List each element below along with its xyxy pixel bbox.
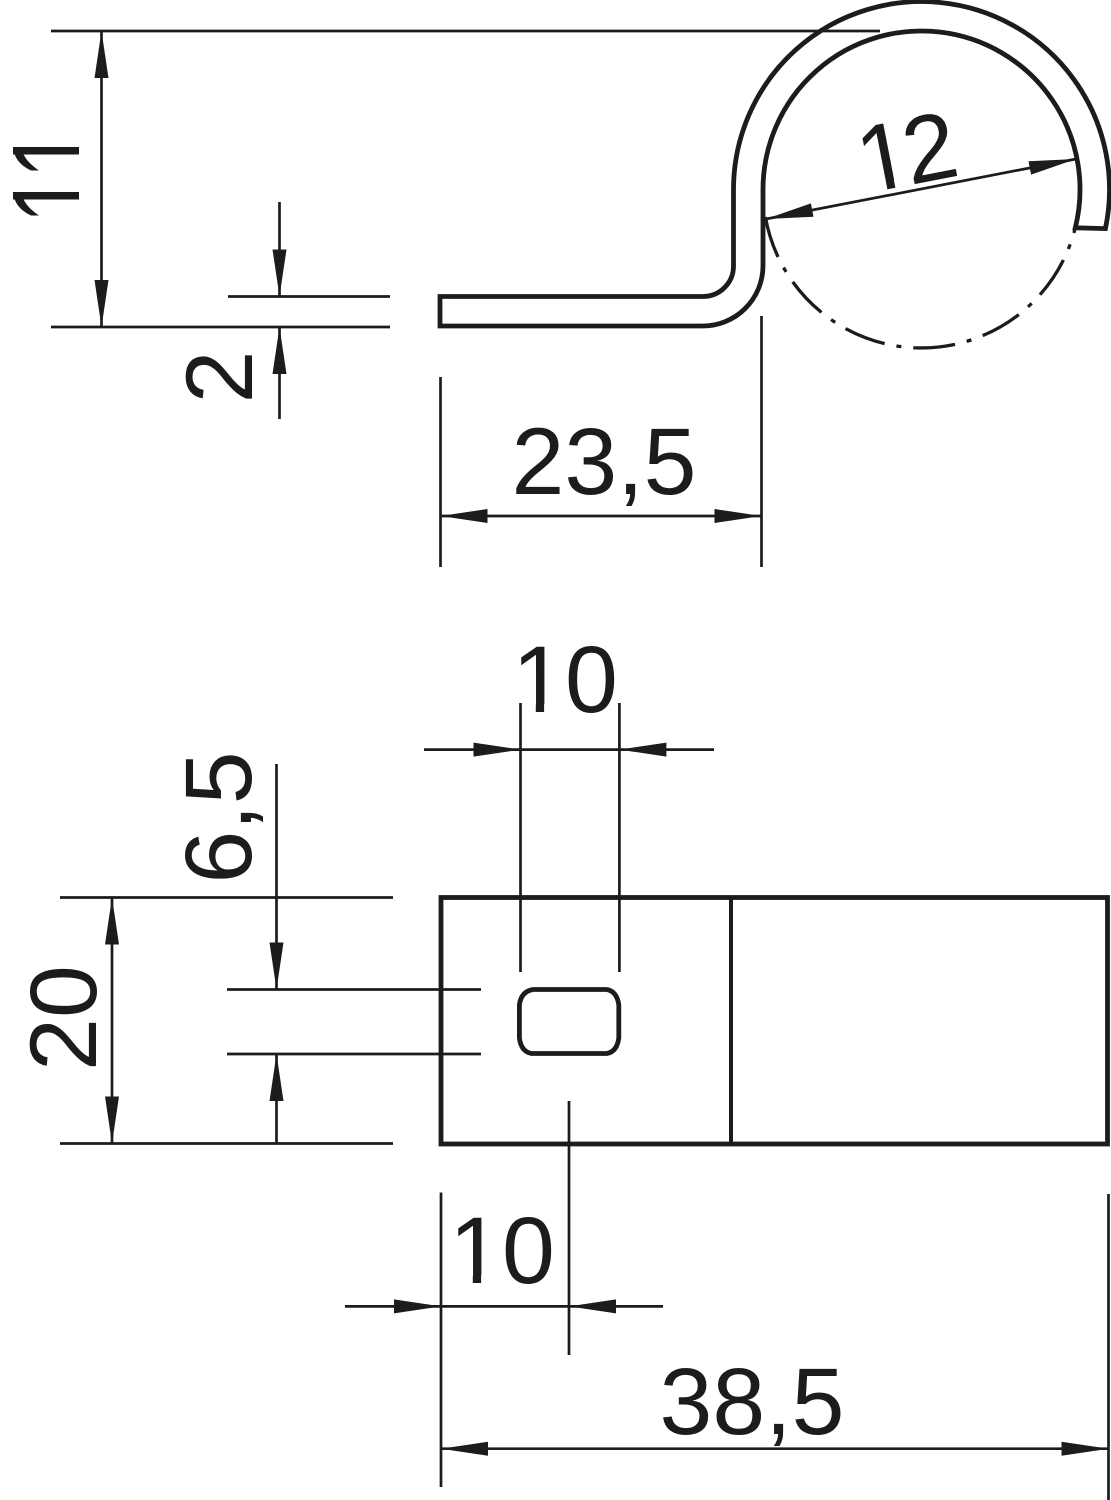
svg-text:2: 2 (167, 351, 273, 404)
svg-text:10: 10 (449, 1198, 555, 1304)
svg-text:10: 10 (512, 627, 618, 733)
svg-text:20: 20 (11, 965, 117, 1071)
svg-text:23,5: 23,5 (512, 409, 697, 515)
svg-text:6,5: 6,5 (166, 751, 272, 883)
svg-text:38,5: 38,5 (660, 1349, 845, 1455)
